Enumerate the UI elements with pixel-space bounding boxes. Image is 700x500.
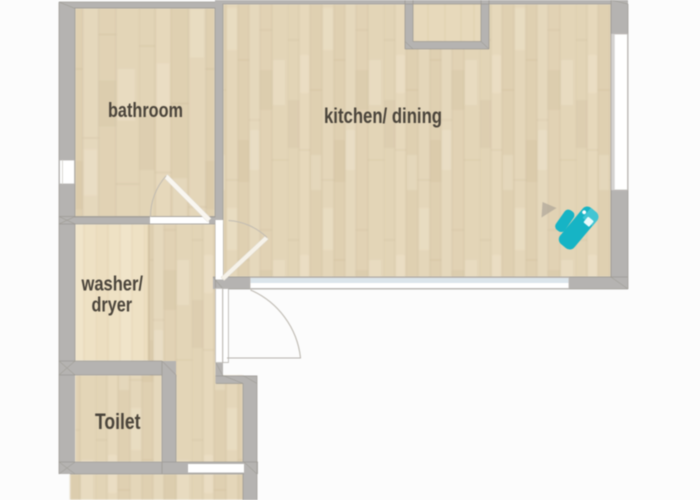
- svg-text:Toilet: Toilet: [95, 409, 141, 434]
- svg-text:washer/: washer/: [81, 274, 144, 296]
- svg-text:bathroom: bathroom: [108, 100, 183, 122]
- svg-text:dryer: dryer: [92, 295, 133, 317]
- svg-text:kitchen/ dining: kitchen/ dining: [324, 104, 442, 128]
